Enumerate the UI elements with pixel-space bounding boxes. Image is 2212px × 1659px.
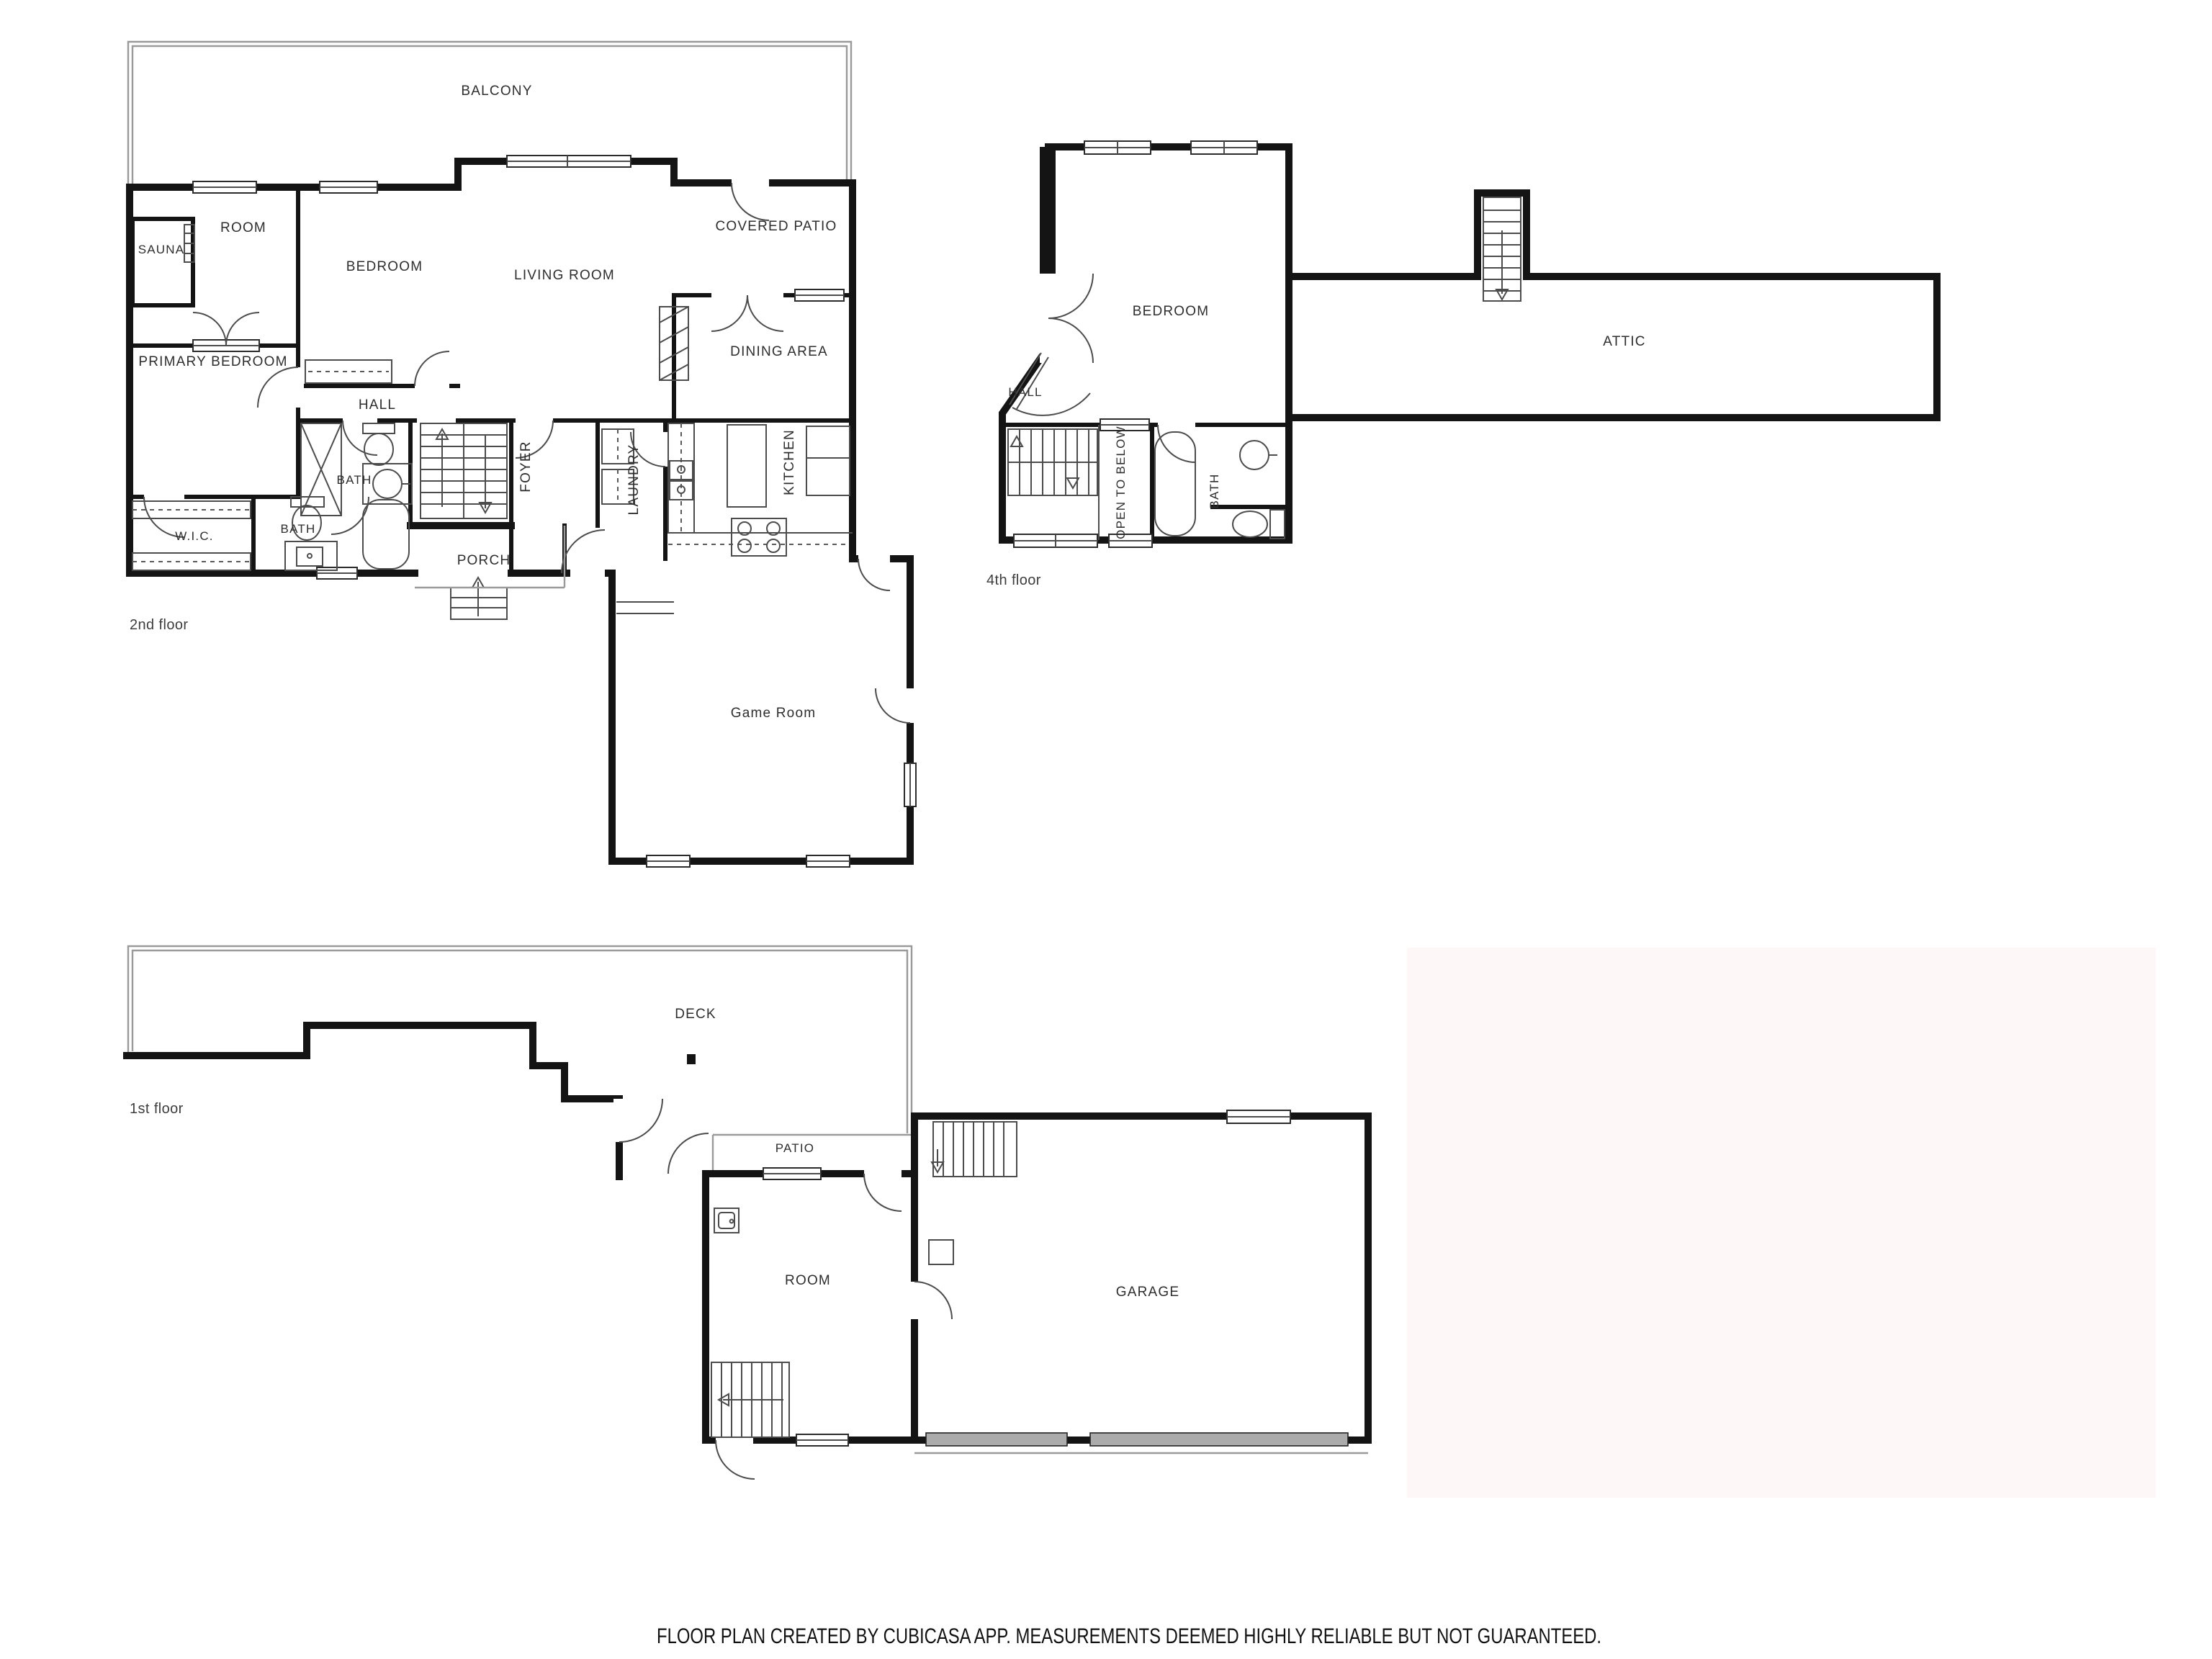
room-label-covered-patio: COVERED PATIO xyxy=(715,219,837,234)
floor-plan-4th-floor: BEDROOM HALL OPEN TO BELOW BATH ATTIC 4t… xyxy=(986,141,1937,588)
floor-plan-1st-floor: DECK PATIO ROOM GARAGE 1st floor xyxy=(127,946,1368,1479)
garage-doors xyxy=(914,1433,1368,1453)
room-label-hall-4f: HALL xyxy=(1008,385,1042,399)
deck-outline xyxy=(128,946,912,1174)
room-label-room-1f: ROOM xyxy=(785,1273,831,1288)
room-label-open-to-below: OPEN TO BELOW xyxy=(1114,426,1128,539)
room-label-foyer: FOYER xyxy=(518,441,534,492)
room-label-bath-4f: BATH xyxy=(1208,474,1221,509)
floor-caption-2nd: 2nd floor xyxy=(130,617,188,633)
room-label-room: ROOM xyxy=(220,220,266,235)
room-label-bath-upper: BATH xyxy=(337,473,372,487)
room-label-garage: GARAGE xyxy=(1116,1285,1180,1300)
room-label-game-room: Game Room xyxy=(731,706,817,721)
floor-caption-4th: 4th floor xyxy=(986,572,1041,588)
room-label-wic: W.I.C. xyxy=(175,529,213,543)
room-label-kitchen: KITCHEN xyxy=(782,429,797,495)
room-label-bedroom: BEDROOM xyxy=(346,259,423,274)
floor-plan-2nd-floor: BALCONY SAUNA ROOM BEDROOM LIVING ROOM C… xyxy=(128,42,916,867)
room-label-deck: DECK xyxy=(675,1007,716,1022)
interior-walls-4f xyxy=(1002,425,1289,540)
room-label-living-room: LIVING ROOM xyxy=(514,268,615,283)
footer-disclaimer: FLOOR PLAN CREATED BY CUBICASA APP. MEAS… xyxy=(657,1624,1601,1648)
stairs-4f xyxy=(1008,197,1521,495)
windows-1f xyxy=(763,1110,1290,1446)
room-label-attic: ATTIC xyxy=(1603,334,1645,349)
labels-2f: BALCONY SAUNA ROOM BEDROOM LIVING ROOM C… xyxy=(130,84,837,721)
room-label-dining-area: DINING AREA xyxy=(730,344,828,359)
floor-caption-1st: 1st floor xyxy=(130,1101,184,1117)
outer-walls-4f xyxy=(1002,147,1937,540)
room-label-primary-bedroom: PRIMARY BEDROOM xyxy=(138,354,287,369)
door-gaps-4f xyxy=(1040,274,1195,431)
outer-walls-2f xyxy=(130,161,910,861)
interior-walls-2f xyxy=(130,187,853,573)
room-label-bedroom-4f: BEDROOM xyxy=(1133,304,1210,319)
room-label-hall-2f: HALL xyxy=(359,397,396,413)
outer-walls-1f xyxy=(127,1025,1368,1440)
labels-1f: DECK PATIO ROOM GARAGE 1st floor xyxy=(130,1007,1179,1300)
door-gaps-1f xyxy=(613,1099,920,1446)
room-label-patio: PATIO xyxy=(775,1141,815,1155)
room-label-sauna: SAUNA xyxy=(138,243,185,256)
door-arcs-1f xyxy=(619,1099,952,1479)
room-label-balcony: BALCONY xyxy=(461,84,532,99)
floor-plan-canvas: BALCONY SAUNA ROOM BEDROOM LIVING ROOM C… xyxy=(0,0,2212,1659)
room-label-porch: PORCH xyxy=(457,553,511,568)
watermark-area xyxy=(1407,948,2156,1498)
room-label-bath-lower: BATH xyxy=(281,522,316,536)
room-label-laundry: LAUNDRY xyxy=(626,444,642,516)
